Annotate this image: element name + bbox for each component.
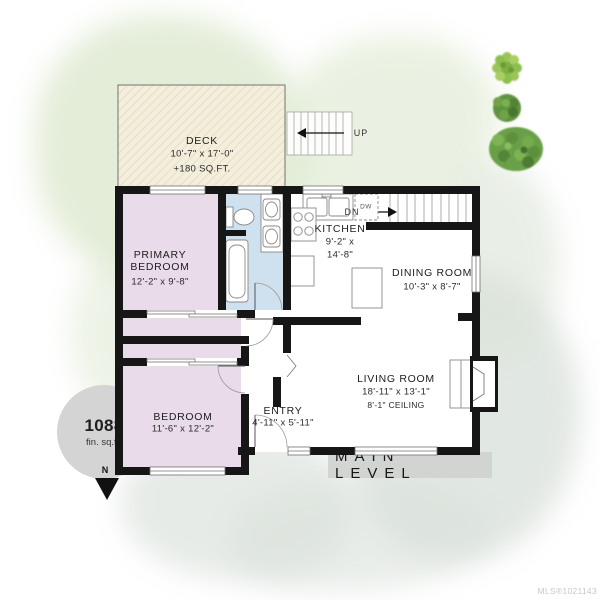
primary-bedroom-dims: 12'-2" x 9'-8": [131, 278, 188, 289]
entry-name: ENTRY: [264, 405, 303, 417]
kitchen-name: KITCHEN: [315, 223, 366, 235]
deck-dims: 10'-7" x 17'-0": [171, 150, 234, 161]
bedroom-name: BEDROOM: [153, 411, 212, 423]
fireplace: [473, 361, 495, 407]
tree-icons: [489, 52, 543, 171]
up-stairs-label: UP: [354, 128, 369, 138]
mls-number: MLS®1021143: [537, 586, 597, 596]
entry-dims: 4'-11" x 5'-11": [252, 419, 314, 430]
living-room-name: LIVING ROOM: [357, 373, 435, 385]
north-arrow-icon: [95, 478, 119, 500]
up-stairs: [287, 112, 352, 155]
bedroom-dims: 11'-6" x 12'-2": [152, 425, 214, 436]
dining-room-name: DINING ROOM: [392, 267, 472, 279]
floorplan-drawing: [0, 0, 600, 600]
tree-icon: [492, 52, 522, 84]
dining-room-dims: 10'-3" x 8'-7": [403, 283, 460, 294]
tree-icon: [493, 94, 521, 122]
kitchen-dims-1: 9'-2" x: [326, 238, 354, 249]
primary-bedroom-name: PRIMARY BEDROOM: [116, 249, 204, 273]
deck-name: DECK: [186, 135, 218, 147]
living-room-ceiling: 8'-1" CEILING: [367, 401, 424, 411]
kitchen-dims-2: 14'-8": [327, 251, 353, 262]
dishwasher-label: DW: [360, 203, 372, 210]
floorplan-page: { "title": { "level_label": "MAIN LEVEL"…: [0, 0, 600, 600]
deck-area: +180 SQ.FT.: [174, 165, 231, 176]
north-label: N: [102, 465, 109, 475]
bush-icon: [489, 127, 543, 171]
down-stairs-label: DN: [345, 207, 360, 217]
living-room-dims: 18'-11" x 13'-1": [362, 388, 430, 399]
